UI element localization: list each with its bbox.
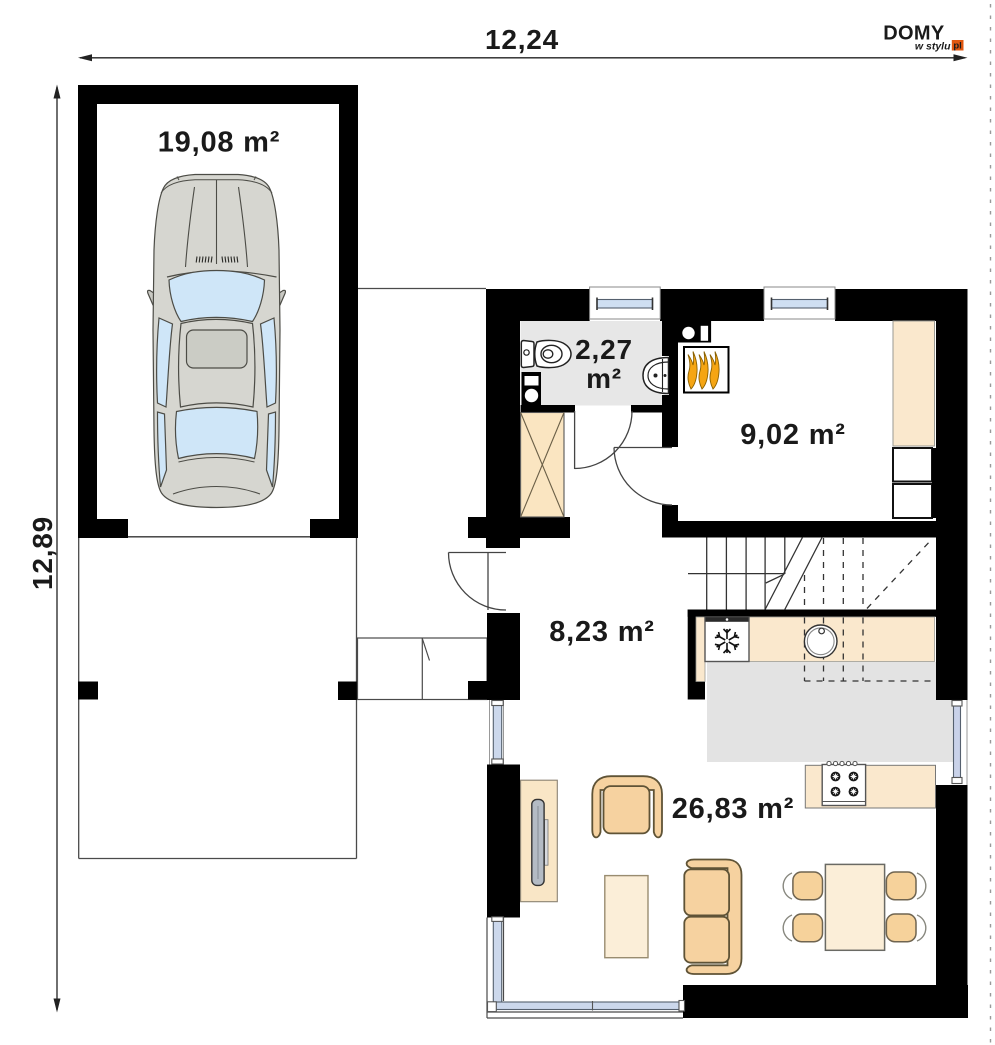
svg-text:w stylu: w stylu xyxy=(915,41,951,53)
svg-text:12,89: 12,89 xyxy=(27,516,58,590)
svg-text:12,24: 12,24 xyxy=(485,24,559,55)
svg-text:26,83 m²: 26,83 m² xyxy=(672,793,794,825)
svg-text:9,02 m²: 9,02 m² xyxy=(740,419,846,451)
svg-text:m²: m² xyxy=(586,363,622,394)
svg-text:2,27: 2,27 xyxy=(575,334,633,365)
svg-text:pl: pl xyxy=(953,41,961,52)
svg-text:8,23 m²: 8,23 m² xyxy=(549,616,655,648)
svg-text:19,08 m²: 19,08 m² xyxy=(158,127,280,159)
